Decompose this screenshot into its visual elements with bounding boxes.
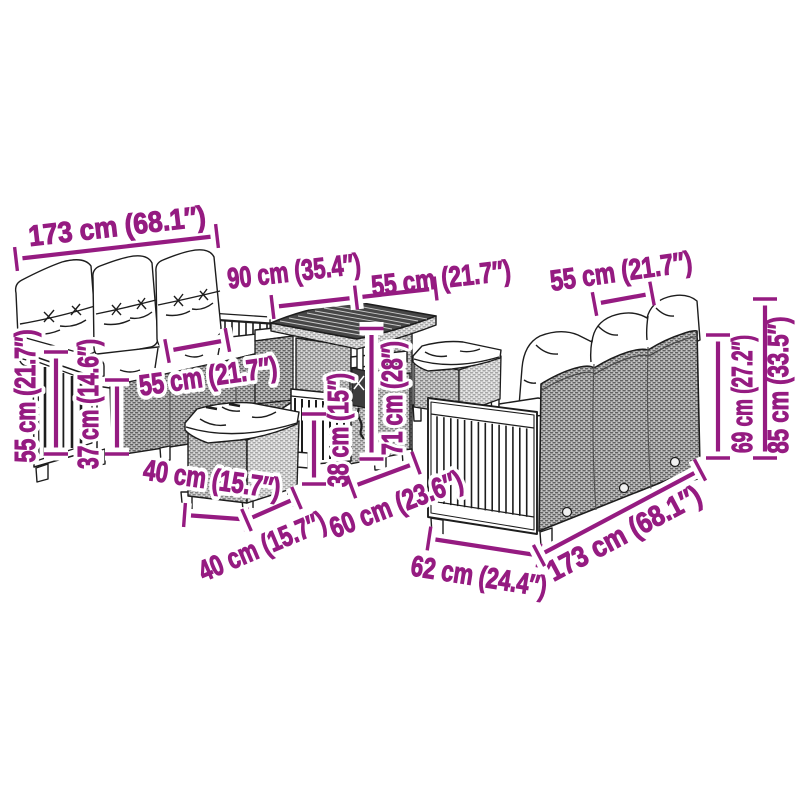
svg-text:55 cm (21.7″): 55 cm (21.7″): [10, 330, 42, 463]
svg-text:37 cm (14.6″): 37 cm (14.6″): [73, 339, 105, 469]
svg-text:85 cm (33.5″): 85 cm (33.5″): [763, 317, 795, 454]
svg-text:69 cm (27.2″): 69 cm (27.2″): [727, 335, 759, 453]
svg-text:71 cm (28″): 71 cm (28″): [377, 341, 409, 455]
svg-text:38 cm (15″): 38 cm (15″): [323, 373, 355, 487]
